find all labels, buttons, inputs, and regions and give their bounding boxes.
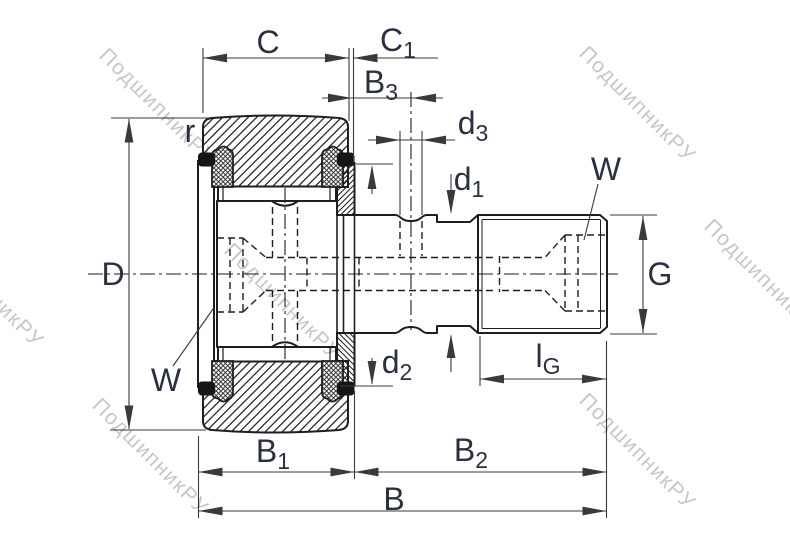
dim-label-d2: d2	[382, 344, 413, 385]
dimension-labels: C C1 B3 d3 d1 W G D r W d2 lG B1 B2 B	[101, 22, 672, 517]
cam-follower-drawing: C C1 B3 d3 d1 W G D r W d2 lG B1 B2 B	[0, 0, 790, 547]
dim-label-d-outer: D	[101, 256, 124, 292]
leader-lines	[173, 184, 598, 366]
seal-lip	[198, 382, 215, 396]
technical-drawing-page: C C1 B3 d3 d1 W G D r W d2 lG B1 B2 B По…	[0, 0, 790, 547]
dim-label-c: C	[256, 24, 279, 60]
dim-label-c1: C1	[380, 22, 416, 63]
dim-label-g: G	[648, 256, 673, 292]
dim-label-w-bottom: W	[151, 362, 182, 398]
dim-label-lg: lG	[536, 338, 561, 379]
dim-label-d3: d3	[458, 105, 489, 146]
dim-label-w-top: W	[591, 151, 622, 187]
dim-label-b3: B3	[364, 64, 398, 105]
dim-label-b1: B1	[256, 433, 290, 474]
seal-lip	[337, 382, 355, 396]
seal-lip	[337, 153, 355, 167]
seal-lip	[198, 153, 215, 167]
dim-label-b: B	[383, 481, 404, 517]
dim-label-r: r	[185, 113, 196, 149]
dim-label-b2: B2	[454, 432, 488, 473]
dim-label-d1: d1	[454, 161, 485, 202]
